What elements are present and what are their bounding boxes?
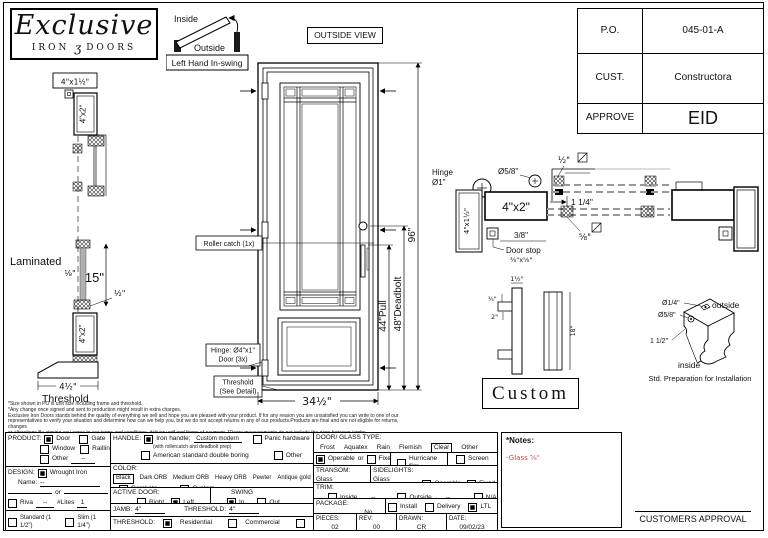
notes-title: *Notes: [506,436,617,446]
checkbox-panic-hardware[interactable] [253,435,262,444]
form-product-cell: PRODUCT: Door Gate Window Railling Other… [5,432,111,467]
door-elevation: Roller catch (1x) Hinge: Ø4"x1" Door (3x… [190,52,435,414]
pieces-value[interactable]: 02 [323,524,347,532]
titleblock-po-label: P.O. [577,8,643,54]
checkbox-door[interactable] [44,435,53,444]
form-operable-cell: Operable or Fixed [313,452,391,466]
swing-inside-label: Inside [174,14,198,24]
hinge-label: Hinge [432,168,453,177]
design-name-value[interactable]: -- [40,479,100,487]
sill-jamb-size-label: 4"x2" [78,325,87,344]
handle-dim-b: 2" [491,313,498,321]
prep-inside-label: inside [678,360,700,370]
prep-detail: Ø1/4" Ø5/8" 1 1/2" outside inside [638,290,764,374]
notes-box: *Notes: -Glass ⅝" [501,432,622,528]
form-threshold-cell: THRESHOLD: Residential Commercial N/A [110,516,314,531]
sheet: Exclusive IRON ʒ DOORS Inside Outside Le… [0,0,768,538]
svg-text:3/8": 3/8" [514,231,528,240]
checkbox-screen[interactable] [456,455,465,464]
svg-text:4"x2": 4"x2" [502,200,530,214]
plan-strike-jamb [672,182,734,220]
svg-text:48"Deadbolt: 48"Deadbolt [393,276,404,331]
checkbox-ltl[interactable] [468,503,477,512]
logo-box: Exclusive IRON ʒ DOORS [10,8,158,60]
form-hurricane-cell: Hurricane film [390,452,448,466]
svg-text:Roller catch (1x): Roller catch (1x) [204,241,255,248]
prep-caption: Std. Preparation for Installation [634,374,766,383]
checkbox-handle-other[interactable] [274,451,283,460]
prep-d14-label: Ø1/4" [662,300,680,307]
handle-detail: 1½" ¾" 2" 18" [480,272,580,376]
plan-jamb-block: 4"x2" [485,192,547,220]
jamb-section-view: 4"x1½" 4"x2" Laminated ⅛" 15" ½" [10,60,160,405]
checkbox-standard[interactable] [8,518,17,527]
checkbox-install[interactable] [388,503,397,512]
height-dimension: 96" [378,63,422,390]
form-frame-style-cell: Standard (1 1/2") Slim (1 1/4") [5,510,111,531]
hinge-callout: Hinge: Ø4"x1" Door (3x) [206,344,262,366]
form-transom-cell: TRANSOM: Glass type: -- [313,465,371,483]
form-design-cell: DESIGN: Wrought Iron Name: -- or [5,466,111,498]
door-knob [359,222,367,230]
threshold-profile [38,362,98,378]
form-shipping-cell: Install Delivery LTL [385,498,498,514]
svg-text:½": ½" [558,156,570,166]
svg-text:(See Detail): (See Detail) [220,389,257,396]
hinge-dia-label: Ø1" [432,178,446,187]
handle-top-dim: 1½" [510,275,523,283]
handle-length-dim: 18" [570,326,577,337]
sill-jamb-section: 4"x2" [73,313,97,362]
drawn-value[interactable]: CR [409,524,435,532]
signature-line[interactable] [635,511,751,512]
swing-right-post [234,32,240,52]
form-active-door-cell: ACTIVE DOOR: Right Left [110,487,211,504]
glass-height-dim: 15" [85,270,104,285]
half-dim: ½" [558,153,587,176]
form-pieces-cell: PIECES: 02 [313,513,357,531]
svg-text:⅜"x⅝": ⅜"x⅝" [510,256,532,264]
handle-front-view [544,292,562,370]
laminated-label: Laminated [10,256,61,268]
outside-view-label: OUTSIDE VIEW [307,27,383,44]
form-trim-cell: TRIM: Inside -- Outside -- N/A [313,482,498,499]
checkbox-delivery[interactable] [425,503,434,512]
titleblock-cust-value: Constructora [642,53,764,104]
checkbox-iron-handle[interactable] [144,435,153,444]
handle-dim-a: ¾" [488,296,497,303]
jamb-threshold-value[interactable]: 4" [229,506,259,514]
form-screen-cell: Screen [447,452,498,466]
roller-symbol-icon [529,175,541,187]
riva-value[interactable]: -- [36,499,54,507]
color-black-selected[interactable]: Black [113,474,134,484]
section-top-size-label: 4"x1½" [61,78,89,87]
custom-label-box: Custom [482,378,579,409]
form-sidelights-cell: SIDELIGHTS: Glass type: -- Operable Fixe… [370,465,498,483]
checkbox-american-boring[interactable] [141,451,150,460]
door-pull-handle [361,245,365,277]
checkbox-railing[interactable] [80,445,89,454]
prep-d112-label: 1 1/2" [650,338,669,345]
form-swing-cell: SWING In Out [210,487,314,504]
glass-stop-section [88,136,104,196]
handle-side-view [498,288,522,374]
checkbox-operable[interactable] [316,455,325,464]
svg-text:⅝": ⅝" [579,233,591,243]
notes-glass[interactable]: -Glass ⅝" [506,454,617,463]
logo-ornament-icon: ʒ [74,41,81,55]
prep-outside-label: outside [712,300,740,310]
swing-arc-icon [229,18,238,32]
plan-door-leaf: 4"x1½" [456,190,482,252]
checkbox-threshold-na[interactable] [296,519,305,528]
svg-text:Door stop: Door stop [506,246,541,255]
form-drawn-cell: DRAWN: CR [396,513,447,531]
threshold-width-dim: 4½" [59,383,77,393]
svg-text:1 1/4": 1 1/4" [571,197,593,207]
logo-title: Exclusive [12,11,156,41]
five-eighth-dim: ⅝" [567,217,601,243]
jamb-plan-detail: Hinge Ø1" Ø5/8" 4"x2" 4"x1½" 3/8" [430,145,768,270]
checkbox-commercial[interactable] [228,519,237,528]
checkbox-slim[interactable] [65,518,74,527]
customers-approval-label: CUSTOMERS APPROVAL [630,514,756,524]
half-inch-dim: ½" [114,289,125,298]
handle-style-value[interactable]: Custom modern [194,436,242,444]
door-stop-detail: 3/8" Door stop ⅜"x⅝" [487,228,546,264]
product-other-value[interactable]: -- [71,455,95,463]
svg-text:4"x1½": 4"x1½" [463,208,471,234]
head-jamb-size-label: 4"x2" [79,105,88,124]
titleblock-approve-label: APPROVE [577,103,643,134]
form-glass-type-cell: DOOR/ GLASS TYPE: Frost Aquatex Rain Fle… [313,432,498,453]
form-date-cell: DATE: 09/02/23 [446,513,498,531]
svg-text:Hinge: Ø4"x1": Hinge: Ø4"x1" [211,348,255,355]
head-jamb-section: 4"x2" [74,93,97,135]
glass-thickness-dim: ⅛" [64,269,75,278]
form-color-cell: COLOR: Black Dark ORB Medium ORB Heavy O… [110,463,314,488]
checkbox-product-other[interactable] [40,455,49,464]
checkbox-riva[interactable] [8,499,17,508]
checkbox-wrought-iron[interactable] [38,469,47,478]
checkbox-fixed[interactable] [367,455,376,464]
form-riva-cell: Riva -- #Lites 1 [5,497,111,511]
date-value[interactable]: 09/02/23 [454,524,490,532]
form-package-cell: PACKAGE: Box No box [313,498,386,514]
svg-text:44"Pull: 44"Pull [378,300,389,331]
prep-d58-label: Ø5/8" [658,312,676,319]
titleblock-po-value: 045-01-A [642,8,764,54]
form-jamb-cell: JAMB: 4" THRESHOLD: 4" [110,503,314,517]
svg-text:Threshold: Threshold [222,380,253,387]
checkbox-residential[interactable] [163,519,172,528]
checkbox-window[interactable] [40,445,49,454]
plan-d58-label: Ø5/8" [498,167,518,176]
jamb-value[interactable]: 4" [135,506,165,514]
titleblock-approve-value: EID [642,103,764,134]
checkbox-gate[interactable] [79,435,88,444]
rev-value[interactable]: 00 [366,524,388,532]
logo-doors: DOORS [86,43,136,53]
svg-text:Door (3x): Door (3x) [218,357,247,364]
form-rev-cell: REV: 00 [356,513,397,531]
titleblock-cust-label: CUST. [577,53,643,104]
lites-value[interactable]: 1 [77,499,87,507]
logo-iron: IRON [32,43,70,53]
one-quarter-dim: 1 1/4" [550,196,593,207]
svg-text:96": 96" [407,227,418,242]
form-handle-cell: HANDLE: Iron handle; Custom modern Panic… [110,432,314,464]
